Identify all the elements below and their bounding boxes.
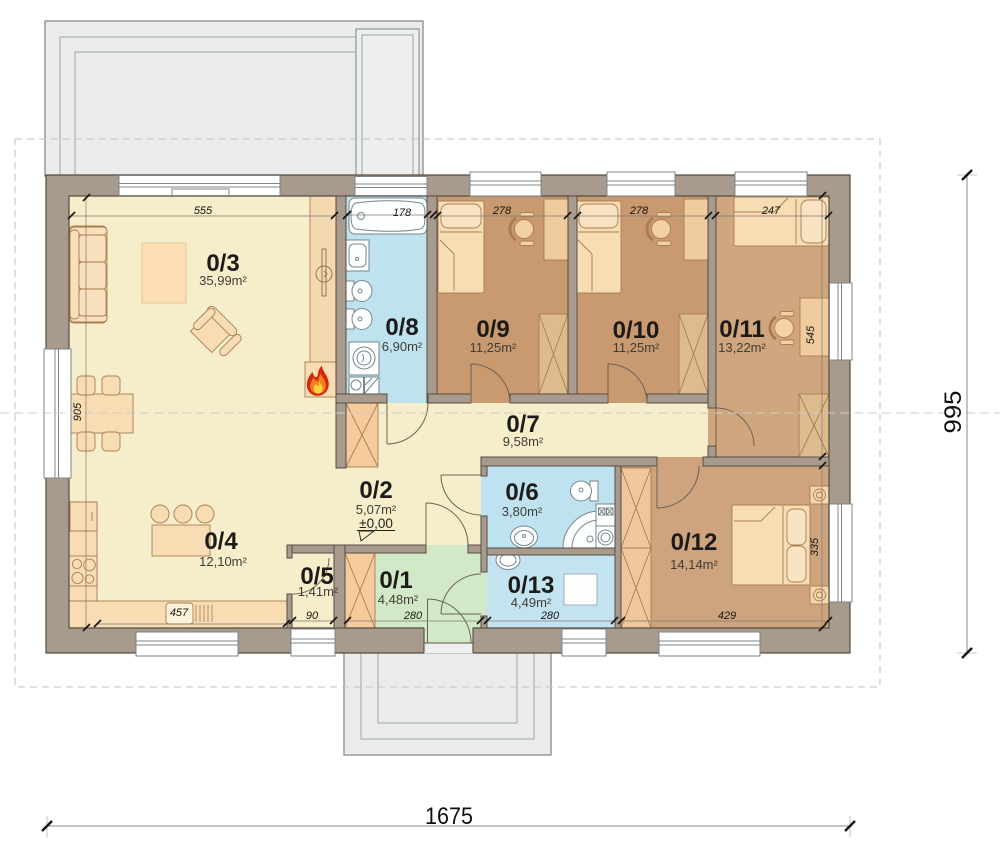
svg-text:280: 280 <box>540 610 560 622</box>
svg-text:555: 555 <box>194 205 213 217</box>
svg-text:905: 905 <box>72 402 84 421</box>
svg-text:278: 278 <box>629 205 649 217</box>
svg-text:3,80m²: 3,80m² <box>502 504 543 519</box>
svg-text:12,10m²: 12,10m² <box>199 554 247 569</box>
svg-text:6,90m²: 6,90m² <box>382 339 423 354</box>
svg-text:11,25m²: 11,25m² <box>613 340 660 355</box>
svg-text:545: 545 <box>805 325 817 344</box>
svg-text:429: 429 <box>718 610 736 622</box>
svg-text:0/11: 0/11 <box>719 316 764 343</box>
svg-text:9,58m²: 9,58m² <box>503 434 544 449</box>
svg-text:278: 278 <box>492 205 512 217</box>
svg-text:14,14m²: 14,14m² <box>670 557 718 572</box>
svg-text:335: 335 <box>809 537 821 556</box>
svg-text:280: 280 <box>403 610 423 622</box>
svg-text:4,49m²: 4,49m² <box>511 595 552 610</box>
svg-text:0/6: 0/6 <box>505 479 538 506</box>
svg-text:35,99m²: 35,99m² <box>199 273 247 288</box>
svg-text:90: 90 <box>306 610 319 622</box>
svg-text:178: 178 <box>393 207 412 219</box>
svg-text:0/4: 0/4 <box>204 528 238 555</box>
svg-text:5,07m²: 5,07m² <box>356 502 397 517</box>
svg-text:1,41m²: 1,41m² <box>298 584 339 599</box>
svg-text:4,48m²: 4,48m² <box>378 592 419 607</box>
svg-text:0/2: 0/2 <box>359 477 392 504</box>
svg-text:0/12: 0/12 <box>671 529 718 556</box>
svg-text:0/9: 0/9 <box>476 316 509 343</box>
svg-text:995: 995 <box>940 391 967 434</box>
svg-text:13,22m²: 13,22m² <box>718 340 766 355</box>
svg-text:11,25m²: 11,25m² <box>470 340 517 355</box>
svg-text:1675: 1675 <box>425 803 473 830</box>
svg-text:457: 457 <box>170 607 189 619</box>
svg-text:±0,00: ±0,00 <box>359 516 393 531</box>
svg-text:0/1: 0/1 <box>379 567 412 594</box>
svg-text:0/8: 0/8 <box>385 314 418 341</box>
svg-text:247: 247 <box>761 205 781 217</box>
